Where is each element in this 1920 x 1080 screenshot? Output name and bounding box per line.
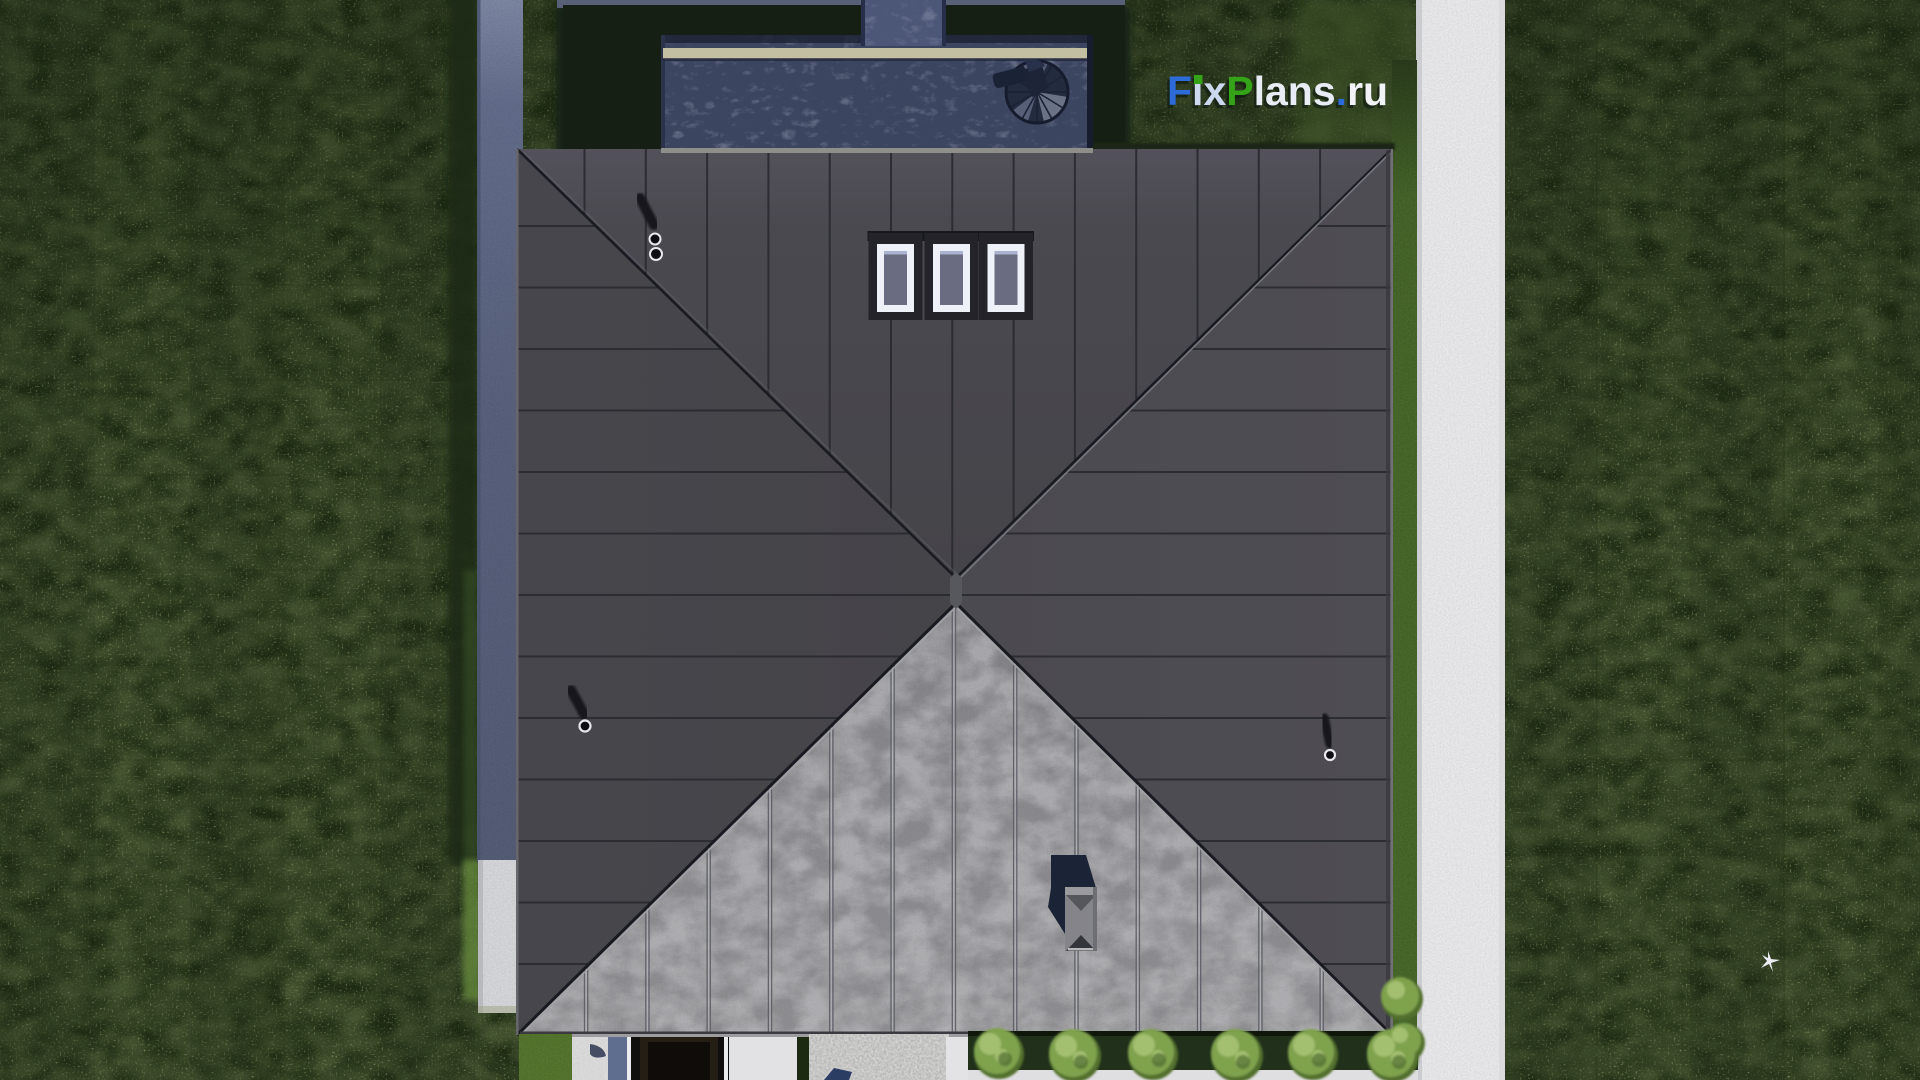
svg-text:FixPlans.ru: FixPlans.ru <box>1167 68 1388 114</box>
